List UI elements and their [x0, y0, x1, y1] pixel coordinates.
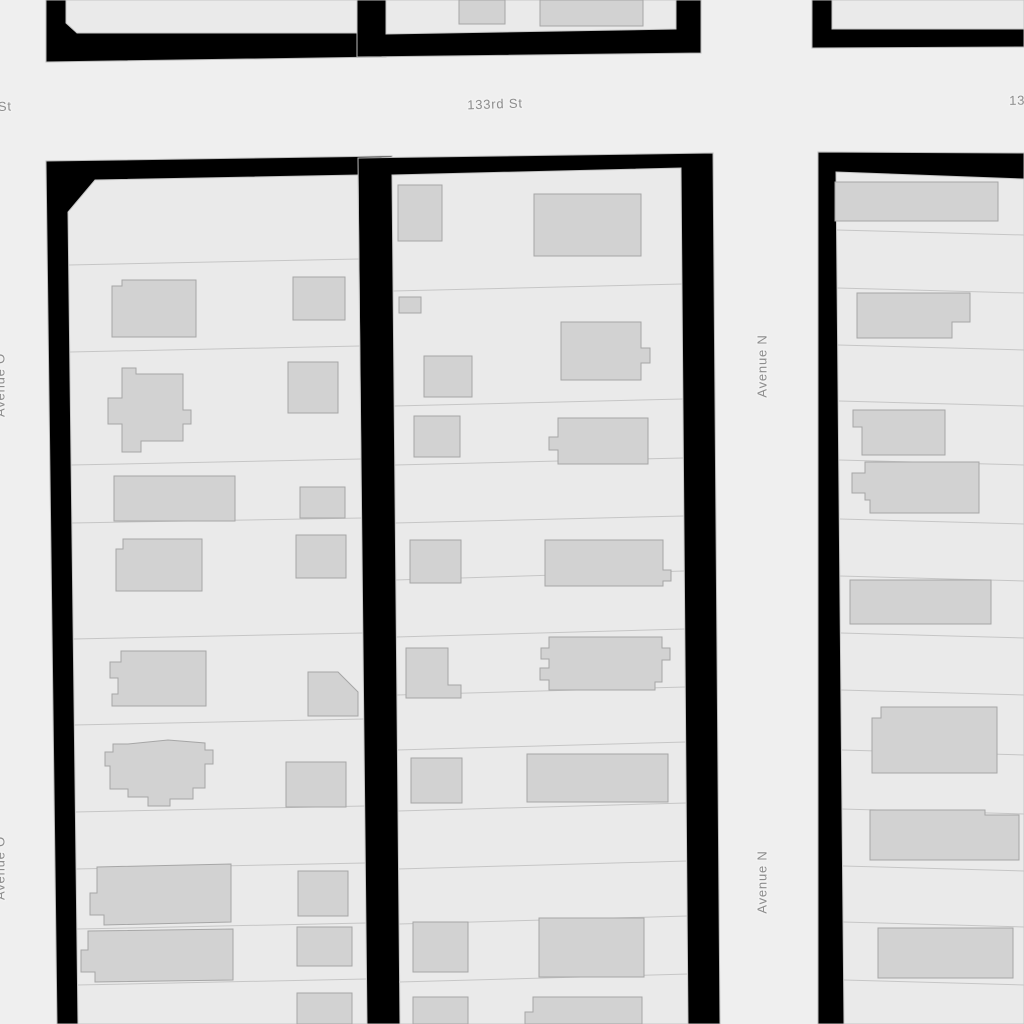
building-footprint	[116, 539, 202, 591]
building-footprint	[297, 927, 352, 966]
building-footprint	[112, 280, 196, 337]
building-footprint	[835, 182, 998, 221]
building-footprint	[296, 535, 346, 578]
building-footprint	[399, 297, 421, 313]
building-footprint	[870, 810, 1019, 860]
map-canvas[interactable]: 133rd St133rd St133rd StAvenue NAvenue N…	[0, 0, 1024, 1024]
building-footprint	[110, 651, 206, 706]
building-footprint	[413, 997, 468, 1024]
building-footprint	[853, 410, 945, 455]
block-top-left-parcels	[66, 0, 357, 33]
building-footprint	[540, 637, 670, 690]
street-label: Avenue N	[754, 850, 769, 913]
street-label: 133rd St	[467, 95, 523, 112]
building-footprint	[410, 540, 461, 583]
building-footprint	[545, 540, 671, 586]
building-footprint	[852, 462, 979, 513]
building-footprint	[398, 185, 442, 241]
building-footprint	[293, 277, 345, 320]
street-label: 133rd St	[1009, 92, 1024, 108]
building-footprint	[527, 754, 668, 802]
building-footprint	[81, 929, 233, 982]
street-label: Avenue N	[754, 334, 769, 397]
building-footprint	[424, 356, 472, 397]
building-footprint	[297, 993, 352, 1024]
block-middle-parcels	[392, 168, 688, 1024]
building-footprint	[549, 418, 648, 464]
building-footprint	[878, 928, 1013, 978]
building-footprint	[525, 997, 642, 1024]
building-footprint	[288, 362, 338, 413]
street-label: 133rd St	[0, 98, 12, 115]
building-footprint	[561, 322, 650, 380]
building-footprint	[850, 580, 991, 624]
building-footprint	[411, 758, 462, 803]
building-footprint	[540, 0, 643, 26]
building-footprint	[534, 194, 641, 256]
building-footprint	[414, 416, 460, 457]
building-footprint	[90, 864, 231, 925]
building-footprint	[413, 922, 468, 972]
building-footprint	[114, 476, 235, 521]
street-label: Avenue O	[0, 353, 7, 417]
building-footprint	[539, 918, 644, 977]
building-footprint	[872, 707, 997, 773]
building-footprint	[286, 762, 346, 807]
street-label: Avenue O	[0, 836, 7, 900]
building-footprint	[300, 487, 345, 518]
building-footprint	[459, 0, 505, 24]
block-top-right-parcels	[832, 0, 1024, 29]
building-footprint	[298, 871, 348, 916]
